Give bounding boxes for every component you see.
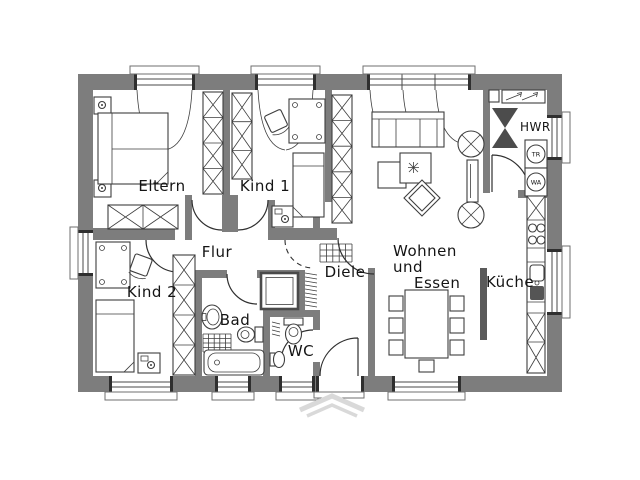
wall-kind2-bad [195, 278, 202, 376]
window-kind2-bottom [105, 376, 177, 400]
room-label-hwr: HWR [520, 120, 551, 134]
chair [389, 340, 403, 355]
wardrobe [232, 93, 252, 179]
chair [389, 318, 403, 333]
toilet-icon [238, 327, 264, 342]
door-eltern [192, 200, 222, 230]
entrance-door [314, 338, 364, 398]
window-kueche [547, 246, 570, 318]
room-wohnen [332, 95, 484, 372]
wardrobe [203, 92, 223, 194]
dryer-label: TR [531, 151, 541, 159]
door-bad [227, 274, 257, 304]
desk [96, 242, 130, 288]
window-terrace [388, 376, 465, 400]
sideboard [108, 205, 178, 229]
wall-wc-east-upper [313, 317, 320, 330]
chair [389, 296, 403, 311]
toilet-icon [284, 318, 303, 344]
nightstand [272, 206, 293, 227]
wall-diele-wohnen [368, 268, 375, 376]
wall-pier-flur [222, 195, 238, 232]
single-bed [96, 300, 134, 372]
wall-wc-east-lower [313, 362, 320, 376]
desk [289, 99, 325, 143]
floor-grid [203, 334, 231, 352]
wardrobe [173, 255, 195, 375]
boiler-icon [492, 108, 518, 148]
wall-kind1-south [268, 228, 337, 240]
chair [450, 340, 464, 355]
plant-icon [408, 162, 419, 173]
window-bad [212, 376, 254, 400]
door-kind1 [238, 200, 268, 230]
room-label-kueche: Küche [486, 273, 534, 291]
doormat-icon [320, 244, 352, 262]
washer-label: WA [531, 179, 542, 187]
chair [419, 360, 434, 372]
side-table [404, 180, 440, 216]
room-label-bad: Bad [220, 311, 251, 329]
electrical-panel-icon [489, 90, 545, 103]
dryer-icon: TR [525, 140, 547, 168]
washer-icon: WA [525, 168, 547, 196]
window-kind2-left [70, 227, 93, 279]
wall-jog-left [185, 195, 192, 240]
dining-table [389, 290, 464, 372]
bathtub-icon [204, 350, 264, 375]
room-diele [320, 244, 352, 262]
room-label-wohnen-3: Essen [414, 274, 460, 292]
wall-eltern-south [93, 228, 175, 240]
shower-icon [261, 273, 298, 309]
wall-wc-north [263, 310, 320, 317]
chair [450, 296, 464, 311]
room-label-kind2: Kind 2 [127, 283, 177, 301]
wardrobe [332, 95, 352, 223]
room-hwr: TR WA [489, 90, 547, 196]
hand-basin-icon [270, 352, 285, 368]
desk-chair [264, 109, 290, 137]
nightstand [94, 97, 111, 114]
room-kind1 [232, 93, 325, 227]
floor-plan: TR WA Eltern Kind 1 Kind 2 Flur Diele Ba… [0, 0, 640, 480]
radiator-icon [272, 322, 280, 336]
room-kind2 [96, 242, 195, 375]
room-label-diele: Diele [325, 263, 366, 281]
desk-chair [128, 253, 153, 280]
room-label-kind1: Kind 1 [240, 177, 290, 195]
window-wc [276, 376, 318, 400]
sofa [372, 112, 444, 147]
room-label-wc: WC [288, 342, 314, 360]
opening-flur-diele [285, 240, 313, 268]
wall-kind1-wohnen [325, 90, 332, 202]
nightstand [138, 353, 160, 373]
shelf-unit [458, 131, 484, 228]
door-hwr [492, 155, 529, 192]
room-label-eltern: Eltern [138, 177, 185, 195]
room-label-flur: Flur [202, 243, 233, 261]
room-eltern [94, 92, 223, 229]
chair [450, 318, 464, 333]
radiator-icon [305, 273, 317, 307]
single-bed [293, 153, 324, 217]
double-bed [98, 113, 168, 184]
wall-eltern-kind1 [223, 90, 230, 197]
